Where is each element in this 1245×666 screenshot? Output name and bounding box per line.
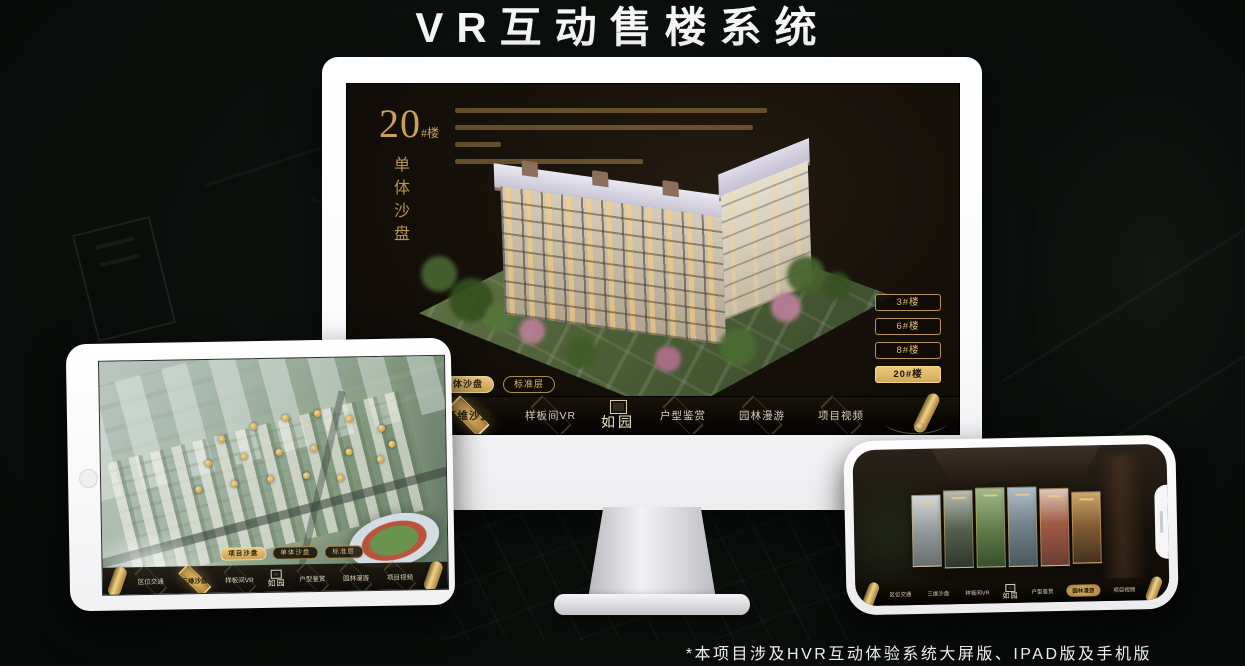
tree — [719, 328, 757, 366]
seal-icon — [271, 569, 282, 578]
page-title: VR互动售楼系统 — [0, 0, 1245, 56]
building-marker[interactable] — [388, 441, 395, 448]
interior-wood-wall — [1099, 454, 1146, 595]
building-marker[interactable] — [250, 423, 257, 430]
brand-logo-text: 如园 — [601, 417, 635, 431]
nav-item-project-video[interactable]: 项目视频 — [383, 567, 417, 586]
nav-item-project-video[interactable]: 项目视频 — [810, 400, 872, 431]
nav-item-showroom-vr[interactable]: 样板间VR — [962, 585, 992, 600]
gallery-panel-interior[interactable] — [1071, 491, 1102, 564]
brand-logo-text: 如园 — [1002, 592, 1018, 599]
nav-item-garden-roam[interactable]: 园林漫游 — [1066, 584, 1100, 597]
nav-item-location[interactable]: 区位交通 — [133, 571, 167, 590]
tablet-device: 项目沙盘 单体沙盘 标准层 区位交通 三维沙盘 样板间VR 如园 户型鉴赏 园林… — [66, 338, 456, 612]
home-button-icon[interactable] — [79, 469, 98, 488]
building-marker[interactable] — [218, 436, 225, 443]
building-marker[interactable] — [205, 460, 212, 467]
block-unit: #楼 — [421, 126, 439, 140]
nav-item-showroom-vr[interactable]: 样板间VR — [517, 400, 584, 431]
building-marker[interactable] — [377, 456, 384, 463]
floor-button-group: 3#楼 6#楼 8#楼 20#楼 — [875, 294, 941, 390]
building-marker[interactable] — [282, 414, 289, 421]
block-label: 20#楼 — [379, 100, 439, 147]
nav-item-unit-plans[interactable]: 户型鉴赏 — [652, 400, 714, 431]
scroll-icon[interactable] — [1144, 574, 1164, 602]
monitor-stand — [588, 507, 716, 599]
nav-item-garden-roam[interactable]: 园林漫游 — [339, 568, 373, 587]
footnote: *本项目涉及HVR互动体验系统大屏版、IPAD版及手机版 — [686, 640, 1152, 664]
nav-item-garden-roam[interactable]: 园林漫游 — [731, 400, 793, 431]
nav-item-project-video[interactable]: 项目视频 — [1110, 582, 1138, 597]
nav-item-unit-plans[interactable]: 户型鉴赏 — [295, 568, 329, 587]
gallery-panel-lobby[interactable] — [943, 490, 974, 569]
poster-canvas: VR互动售楼系统 20#楼 单体沙盘 — [0, 0, 1245, 666]
monitor-base — [554, 594, 750, 615]
section-title-vertical: 单体沙盘 — [387, 156, 411, 248]
gallery-panel-garden[interactable] — [975, 487, 1006, 568]
tab-standard-floor[interactable]: 标准层 — [324, 545, 363, 559]
building-marker[interactable] — [314, 410, 321, 417]
tablet-tab-group: 项目沙盘 单体沙盘 标准层 — [220, 545, 363, 560]
scroll-icon[interactable] — [889, 394, 947, 436]
tab-single-sandbox[interactable]: 单体沙盘 — [272, 546, 318, 560]
nav-item-unit-plans[interactable]: 户型鉴赏 — [1028, 584, 1056, 599]
scroll-icon[interactable] — [106, 565, 128, 596]
building-marker[interactable] — [310, 445, 317, 452]
tree — [421, 256, 457, 292]
building-block — [500, 151, 819, 364]
brand-logo: 如园 — [267, 569, 285, 587]
background-certificate-frame — [72, 216, 176, 342]
tablet-screen: 项目沙盘 单体沙盘 标准层 区位交通 三维沙盘 样板间VR 如园 户型鉴赏 园林… — [98, 355, 449, 596]
speaker-slot-icon — [1160, 511, 1163, 533]
floor-button-6[interactable]: 6#楼 — [875, 318, 941, 335]
nav-item-3d-sandbox[interactable]: 三维沙盘 — [177, 570, 211, 589]
blossom-tree — [771, 292, 801, 322]
gallery-panel-facade[interactable] — [1007, 486, 1038, 567]
scroll-icon[interactable] — [422, 559, 444, 592]
block-number: 20 — [379, 101, 421, 146]
building-marker[interactable] — [346, 448, 353, 455]
brand-logo: 如园 — [1002, 583, 1018, 599]
seal-icon — [610, 400, 627, 414]
floor-button-20[interactable]: 20#楼 — [875, 366, 941, 383]
tree — [787, 256, 825, 294]
gallery-panel-courtyard[interactable] — [911, 494, 942, 567]
tree — [823, 272, 851, 300]
phone-device: 区位交通 三维沙盘 样板间VR 如园 户型鉴赏 园林漫游 项目视频 — [843, 435, 1179, 616]
seal-icon — [1005, 583, 1015, 591]
building-marker[interactable] — [231, 480, 238, 487]
tab-standard-floor[interactable]: 标准层 — [503, 376, 555, 393]
background-river-glow — [1025, 60, 1245, 480]
floor-button-8[interactable]: 8#楼 — [875, 342, 941, 359]
tablet-navbar: 区位交通 三维沙盘 样板间VR 如园 户型鉴赏 园林漫游 项目视频 — [103, 562, 448, 595]
interior-pergola — [930, 445, 1101, 485]
building-marker[interactable] — [241, 453, 248, 460]
phone-screen: 区位交通 三维沙盘 样板间VR 如园 户型鉴赏 园林漫游 项目视频 — [852, 444, 1169, 607]
building-marker[interactable] — [267, 476, 274, 483]
brand-logo: 如园 — [601, 400, 635, 431]
nav-item-3d-sandbox[interactable]: 三维沙盘 — [924, 586, 952, 601]
building-marker[interactable] — [378, 425, 385, 432]
building-marker[interactable] — [346, 415, 353, 422]
camera-notch — [1154, 485, 1169, 559]
scroll-icon[interactable] — [861, 580, 881, 606]
brand-logo-text: 如园 — [268, 579, 286, 587]
building-marker[interactable] — [276, 449, 283, 456]
building-marker[interactable] — [195, 486, 202, 493]
tab-project-sandbox[interactable]: 项目沙盘 — [220, 547, 266, 561]
floor-button-3[interactable]: 3#楼 — [875, 294, 941, 311]
nav-item-location[interactable]: 区位交通 — [886, 587, 914, 602]
gallery-panel-autumn[interactable] — [1039, 488, 1070, 567]
nav-item-showroom-vr[interactable]: 样板间VR — [221, 570, 258, 589]
